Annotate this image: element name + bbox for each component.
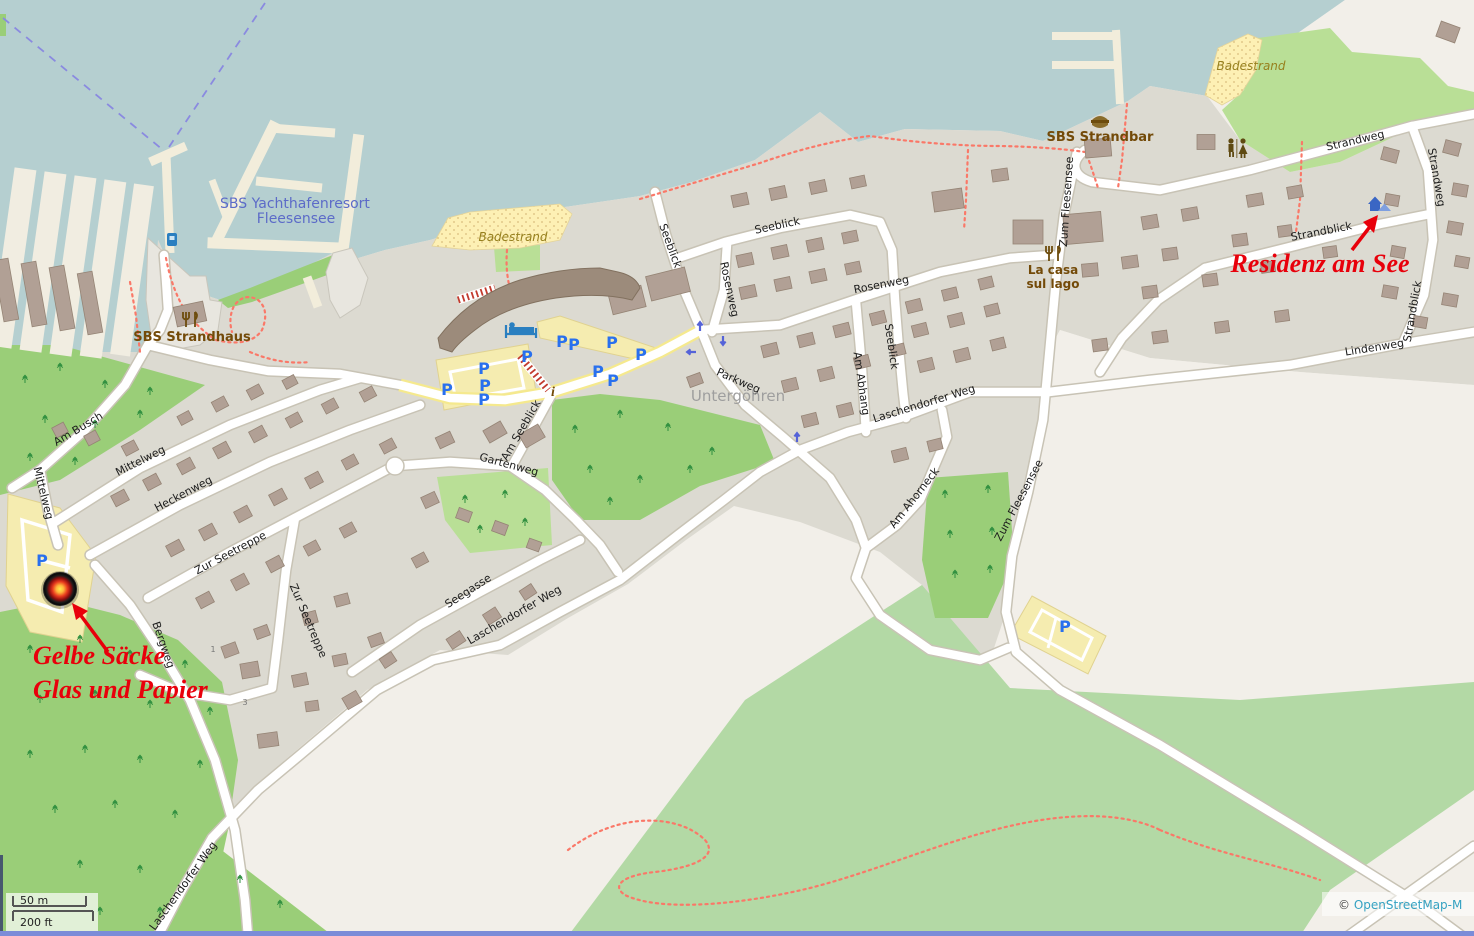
strandhaus-label: SBS Strandhaus <box>133 330 251 345</box>
turning-circle <box>386 457 404 475</box>
parking-icon: P <box>441 380 453 399</box>
annotation-gelbe-line1: Gelbe Säcke <box>33 641 165 670</box>
fuel-station-icon <box>167 233 177 246</box>
beach-label-ne: Badestrand <box>1216 59 1285 73</box>
lacasa-label-line1: La casa <box>1028 263 1078 277</box>
parking-icon: P <box>1059 617 1071 636</box>
marina-label-line1: SBS Yachthafenresort <box>220 196 370 212</box>
attribution-link[interactable]: OpenStreetMap-M <box>1354 898 1463 912</box>
copyright-symbol: © <box>1338 898 1354 912</box>
svg-text:© OpenStreetMap-M: © OpenStreetMap-M <box>1338 898 1462 912</box>
parking-icon: P <box>556 332 568 351</box>
attribution: © OpenStreetMap-M <box>1322 892 1474 916</box>
parking-icon: P <box>478 390 490 409</box>
scale-imperial: 200 ft <box>20 916 53 929</box>
information-icon: i <box>551 385 555 400</box>
parking-icon: P <box>592 362 604 381</box>
strandbar-label: SBS Strandbar <box>1047 130 1155 145</box>
annotation-gelbe-line2: Glas und Papier <box>33 675 209 704</box>
parking-icon: P <box>36 551 48 570</box>
annotation-residenz: Residenz am See <box>1229 249 1409 278</box>
parking-icon: P <box>607 371 619 390</box>
scale-bar: 50 m 200 ft <box>6 893 98 931</box>
marina-label-line2: Fleesensee <box>257 211 335 227</box>
village-label: Untergöhren <box>691 387 785 405</box>
housenumber: 3 <box>242 698 247 707</box>
map-viewport[interactable]: PPPPPPPPPPPPP <box>0 0 1474 936</box>
parking-icon: P <box>568 335 580 354</box>
beach-label-mid: Badestrand <box>478 230 547 244</box>
marker-glow[interactable] <box>41 571 79 609</box>
parking-icon: P <box>635 345 647 364</box>
map-canvas[interactable]: PPPPPPPPPPPPP <box>0 0 1474 936</box>
parking-icon: P <box>521 347 533 366</box>
scale-metric: 50 m <box>20 894 48 907</box>
housenumber: 1 <box>210 645 215 654</box>
lacasa-label-line2: sul lago <box>1026 277 1079 291</box>
parking-icon: P <box>606 333 618 352</box>
